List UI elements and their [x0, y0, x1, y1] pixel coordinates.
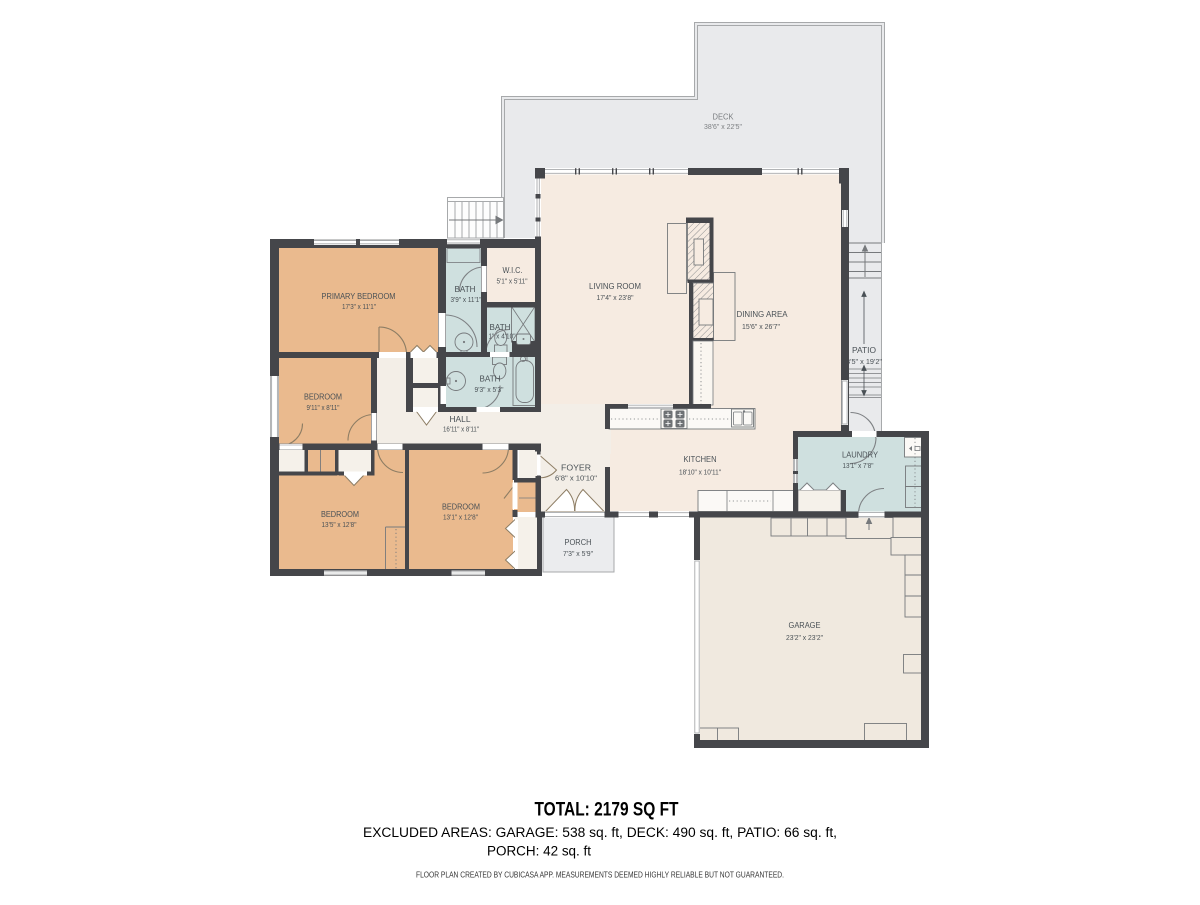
svg-text:KITCHEN: KITCHEN — [684, 455, 717, 464]
svg-text:HALL: HALL — [450, 415, 471, 424]
svg-text:PRIMARY BEDROOM: PRIMARY BEDROOM — [322, 292, 396, 301]
svg-text:3'5" x 19'2": 3'5" x 19'2" — [846, 357, 882, 366]
svg-text:LAUNDRY: LAUNDRY — [842, 451, 878, 460]
svg-text:1" x 4'10": 1" x 4'10" — [489, 332, 516, 341]
svg-text:EXCLUDED AREAS: GARAGE: 538 sq: EXCLUDED AREAS: GARAGE: 538 sq. ft, DECK… — [363, 825, 837, 841]
svg-text:38'6" x 22'5": 38'6" x 22'5" — [704, 122, 742, 131]
svg-text:PATIO: PATIO — [852, 346, 876, 355]
svg-text:BATH: BATH — [455, 285, 476, 294]
svg-text:23'2" x 23'2": 23'2" x 23'2" — [786, 633, 823, 642]
svg-text:GARAGE: GARAGE — [789, 621, 821, 630]
svg-text:6'8" x 10'10": 6'8" x 10'10" — [555, 474, 597, 483]
svg-text:9'11" x 8'11": 9'11" x 8'11" — [307, 403, 340, 412]
svg-text:18'10" x 10'11": 18'10" x 10'11" — [679, 468, 721, 477]
svg-text:15'6" x 26'7": 15'6" x 26'7" — [742, 322, 780, 331]
svg-text:13'1" x 7'8": 13'1" x 7'8" — [843, 461, 874, 470]
svg-text:LIVING ROOM: LIVING ROOM — [589, 282, 641, 291]
svg-text:3'9" x 11'1": 3'9" x 11'1" — [451, 295, 482, 304]
svg-text:7'3" x 5'9": 7'3" x 5'9" — [563, 549, 593, 558]
svg-text:BEDROOM: BEDROOM — [442, 503, 480, 512]
svg-text:BEDROOM: BEDROOM — [321, 510, 359, 519]
svg-text:FOYER: FOYER — [561, 464, 591, 473]
svg-text:W.I.C.: W.I.C. — [503, 266, 523, 275]
svg-text:BEDROOM: BEDROOM — [304, 393, 342, 402]
svg-text:17'4" x 23'8": 17'4" x 23'8" — [597, 293, 634, 302]
svg-text:9'3" x 5'3": 9'3" x 5'3" — [475, 385, 504, 394]
svg-text:17'3" x 11'1": 17'3" x 11'1" — [342, 302, 376, 311]
svg-text:PORCH: PORCH — [565, 537, 592, 547]
svg-text:13'5" x 12'8": 13'5" x 12'8" — [322, 520, 357, 529]
svg-text:DINING AREA: DINING AREA — [737, 310, 789, 319]
svg-text:FLOOR PLAN CREATED BY CUBICASA: FLOOR PLAN CREATED BY CUBICASA APP. MEAS… — [416, 871, 784, 880]
svg-text:DECK: DECK — [713, 112, 734, 122]
svg-text:13'1" x 12'8": 13'1" x 12'8" — [443, 513, 478, 522]
svg-text:BATH: BATH — [480, 375, 501, 384]
svg-text:TOTAL: 2179 SQ FT: TOTAL: 2179 SQ FT — [535, 800, 679, 821]
svg-text:PORCH: 42 sq. ft: PORCH: 42 sq. ft — [487, 844, 591, 860]
svg-text:5'1" x 5'11": 5'1" x 5'11" — [497, 277, 528, 286]
svg-text:16'11" x 8'11": 16'11" x 8'11" — [443, 425, 479, 434]
